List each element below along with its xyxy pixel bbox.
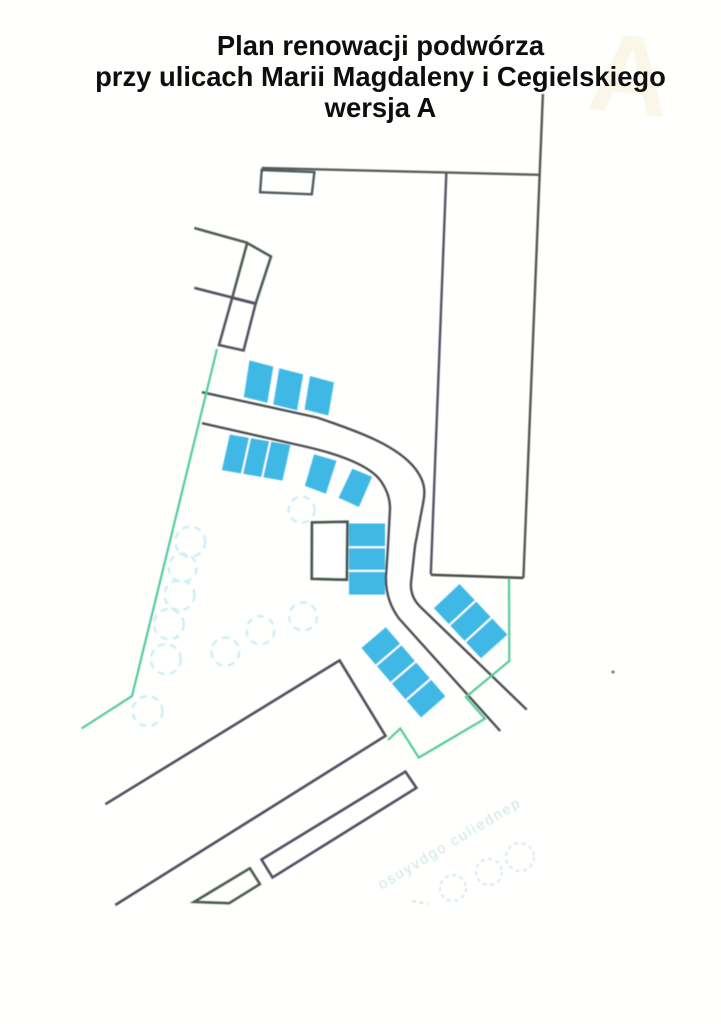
svg-text:osuyvdgo culiednep: osuyvdgo culiednep bbox=[375, 795, 524, 893]
